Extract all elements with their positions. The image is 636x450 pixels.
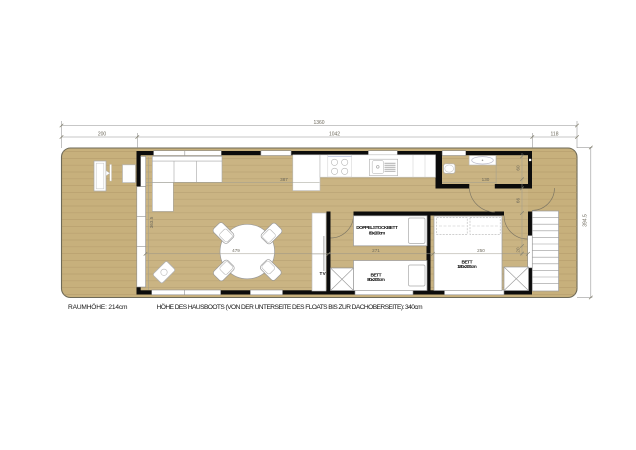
svg-text:180x200cm: 180x200cm [457, 264, 477, 270]
svg-text:20: 20 [516, 247, 521, 253]
svg-text:1360: 1360 [313, 120, 324, 126]
svg-text:130: 130 [482, 177, 490, 182]
svg-text:TV: TV [320, 271, 327, 276]
svg-text:479: 479 [232, 248, 240, 253]
svg-text:271: 271 [372, 248, 380, 253]
svg-text:118: 118 [551, 132, 559, 138]
svg-text:250: 250 [477, 248, 485, 253]
svg-text:394.5: 394.5 [582, 214, 588, 227]
svg-text:RAUMHÖHE: 214cm: RAUMHÖHE: 214cm [68, 303, 128, 311]
svg-text:1042: 1042 [329, 132, 340, 138]
svg-text:80x200cm: 80x200cm [367, 277, 385, 283]
svg-text:60: 60 [516, 165, 521, 171]
svg-text:80x200cm: 80x200cm [369, 230, 386, 236]
svg-text:66: 66 [516, 198, 521, 204]
svg-text:200: 200 [98, 132, 107, 138]
svg-text:DOPPELSTOCKBETT: DOPPELSTOCKBETT [356, 225, 398, 231]
svg-text:HÖHE DES HAUSBOOTS (VON DER UN: HÖHE DES HAUSBOOTS (VON DER UNTERSEITE D… [157, 303, 424, 311]
svg-text:387: 387 [280, 177, 288, 182]
svg-text:363.5: 363.5 [149, 216, 154, 228]
